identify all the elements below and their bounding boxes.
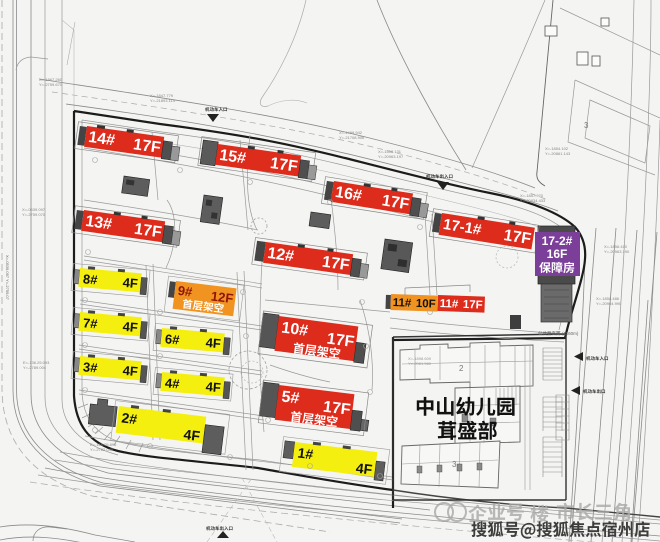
svg-text:Y=-21708.906: Y=-21708.906 <box>339 135 365 140</box>
svg-text:1#: 1# <box>297 444 315 462</box>
svg-text:5#: 5# <box>281 388 301 407</box>
svg-text:X=-0539.097 Y=-2759.07: X=-0539.097 Y=-2759.07 <box>5 255 10 301</box>
svg-text:17-2#: 17-2# <box>542 234 573 248</box>
svg-text:7#: 7# <box>82 315 98 331</box>
svg-text:(1160m): (1160m) <box>562 331 579 336</box>
svg-text:Y=-2789.004: Y=-2789.004 <box>23 365 47 370</box>
svg-text:Y=-2782.045: Y=-2782.045 <box>90 447 114 452</box>
svg-text:11#: 11# <box>392 297 412 310</box>
svg-text:Y=-2759.070: Y=-2759.070 <box>22 212 46 217</box>
svg-text:2: 2 <box>459 364 464 373</box>
svg-text:17F: 17F <box>322 399 352 419</box>
svg-text:3: 3 <box>584 121 589 130</box>
svg-text:Y=-20963.190: Y=-20963.190 <box>604 249 630 254</box>
svg-text:4F: 4F <box>122 275 138 291</box>
svg-text:Y=-20834.433: Y=-20834.433 <box>520 198 546 203</box>
svg-text:4F: 4F <box>205 379 221 395</box>
svg-text:4F: 4F <box>183 426 202 444</box>
svg-text:Y=-2081.560: Y=-2081.560 <box>408 361 432 366</box>
svg-text:Y=-21893.114: Y=-21893.114 <box>150 98 176 103</box>
svg-text:2#: 2# <box>121 409 139 427</box>
svg-text:12F: 12F <box>210 288 234 306</box>
svg-text:3: 3 <box>452 460 457 469</box>
svg-text:Y=-20963.197: Y=-20963.197 <box>378 154 404 159</box>
svg-text:10#: 10# <box>280 319 309 339</box>
svg-text:4#: 4# <box>164 375 180 391</box>
svg-text:4F: 4F <box>355 460 374 478</box>
svg-text:17F: 17F <box>326 331 356 351</box>
svg-text:4F: 4F <box>122 319 138 335</box>
svg-text:3#: 3# <box>82 359 98 375</box>
svg-text:16F: 16F <box>547 247 568 261</box>
svg-text:Y=-2759.670: Y=-2759.670 <box>39 82 63 87</box>
svg-text:6#: 6# <box>164 331 180 347</box>
svg-text:4F: 4F <box>205 335 221 351</box>
svg-text:10F: 10F <box>416 298 436 311</box>
svg-text:11#: 11# <box>439 298 459 311</box>
svg-text:Y=-20861.143: Y=-20861.143 <box>545 151 571 156</box>
svg-text:4F: 4F <box>122 363 138 379</box>
svg-text:17F: 17F <box>463 299 483 312</box>
svg-text:8#: 8# <box>82 271 98 287</box>
svg-text:Y=-20964.990: Y=-20964.990 <box>596 301 622 306</box>
svg-text:9#: 9# <box>177 283 194 300</box>
